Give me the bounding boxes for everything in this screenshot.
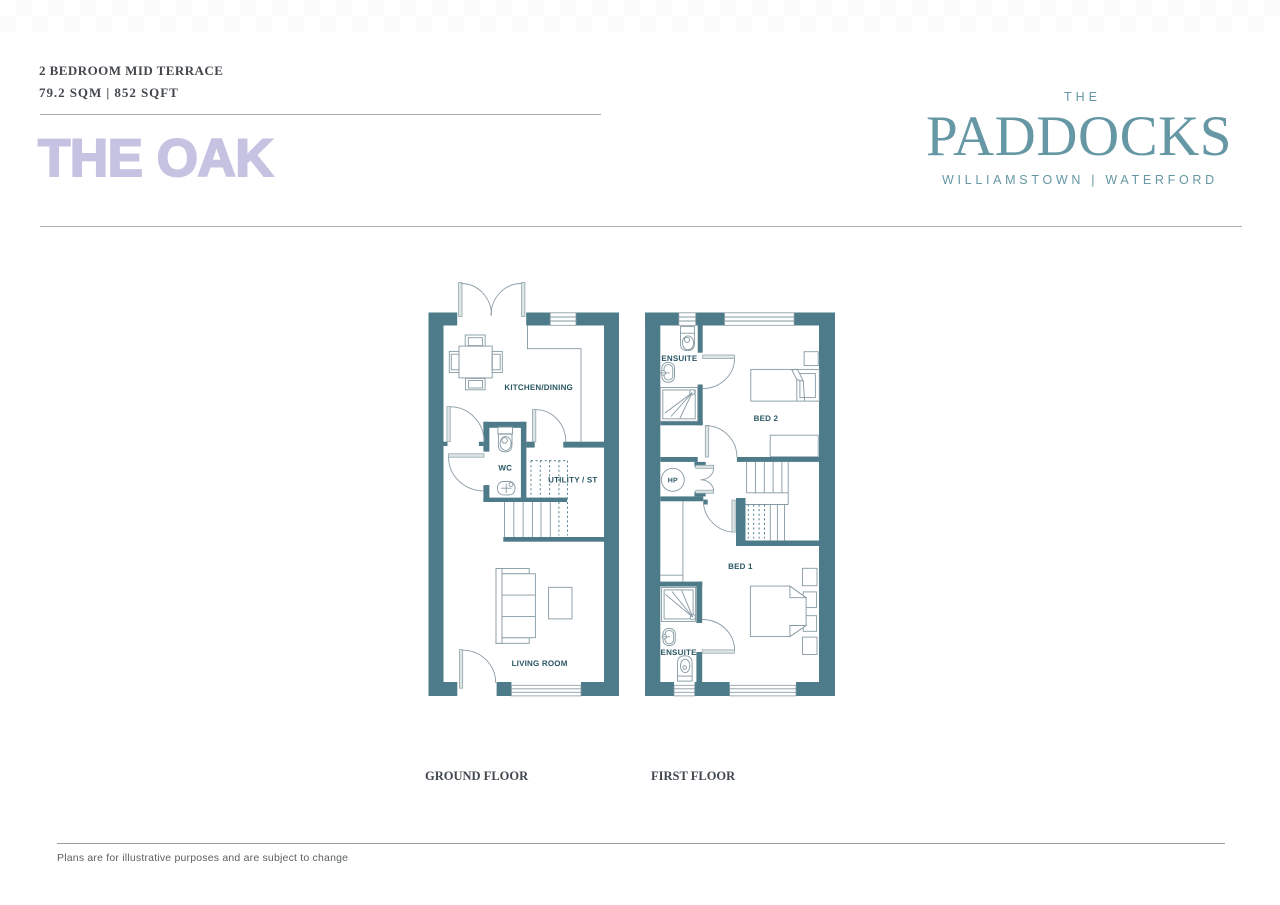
svg-text:KITCHEN/DINING: KITCHEN/DINING	[504, 383, 573, 392]
svg-text:WC: WC	[498, 463, 512, 472]
svg-text:BED 2: BED 2	[754, 414, 779, 423]
svg-text:LIVING ROOM: LIVING ROOM	[512, 659, 568, 668]
svg-text:UTILITY / ST: UTILITY / ST	[548, 475, 597, 484]
svg-text:ENSUITE: ENSUITE	[661, 648, 698, 657]
svg-text:BED 1: BED 1	[728, 562, 753, 571]
svg-text:ENSUITE: ENSUITE	[661, 354, 698, 363]
svg-text:HP: HP	[668, 477, 678, 484]
